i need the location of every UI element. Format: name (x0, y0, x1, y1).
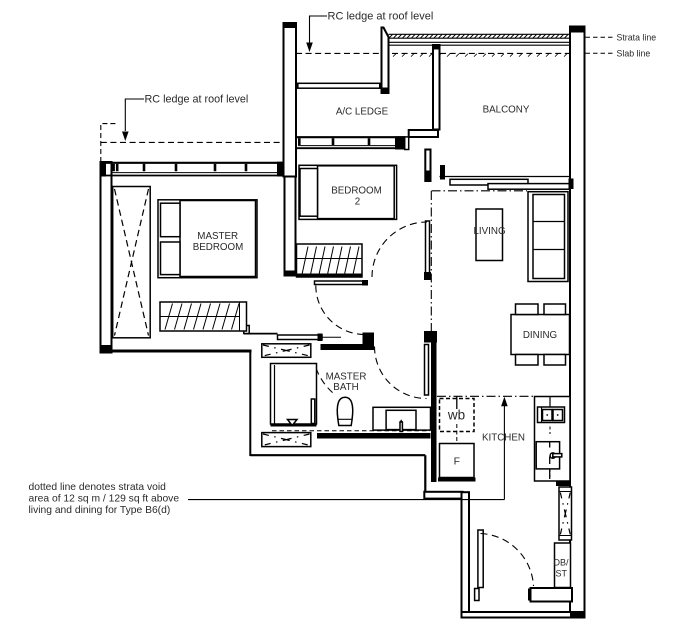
svg-text:Slab line: Slab line (617, 49, 651, 59)
svg-text:BATH: BATH (333, 382, 358, 393)
svg-text:RC ledge at roof level: RC ledge at roof level (145, 94, 249, 106)
svg-text:living and dining for Type B6(: living and dining for Type B6(d) (29, 505, 171, 516)
svg-text:MASTER: MASTER (197, 231, 238, 242)
svg-text:MASTER: MASTER (326, 371, 367, 382)
svg-text:KITCHEN: KITCHEN (482, 433, 525, 444)
svg-text:wb: wb (447, 407, 465, 422)
svg-text:DINING: DINING (523, 330, 557, 341)
svg-text:DB/: DB/ (553, 558, 569, 568)
svg-text:ST: ST (556, 569, 568, 579)
svg-text:2: 2 (355, 197, 360, 208)
svg-text:area of 12 sq m / 129 sq ft ab: area of 12 sq m / 129 sq ft above (29, 494, 180, 505)
svg-text:F: F (454, 456, 460, 468)
svg-text:RC ledge at roof level: RC ledge at roof level (328, 11, 434, 23)
svg-text:Strata line: Strata line (617, 33, 657, 43)
svg-text:dotted line denotes strata voi: dotted line denotes strata void (29, 482, 167, 493)
svg-text:BALCONY: BALCONY (483, 104, 530, 115)
svg-text:BEDROOM: BEDROOM (193, 242, 244, 253)
svg-text:A/C LEDGE: A/C LEDGE (336, 107, 389, 118)
svg-text:BEDROOM: BEDROOM (331, 185, 382, 196)
svg-text:LIVING: LIVING (473, 226, 505, 237)
